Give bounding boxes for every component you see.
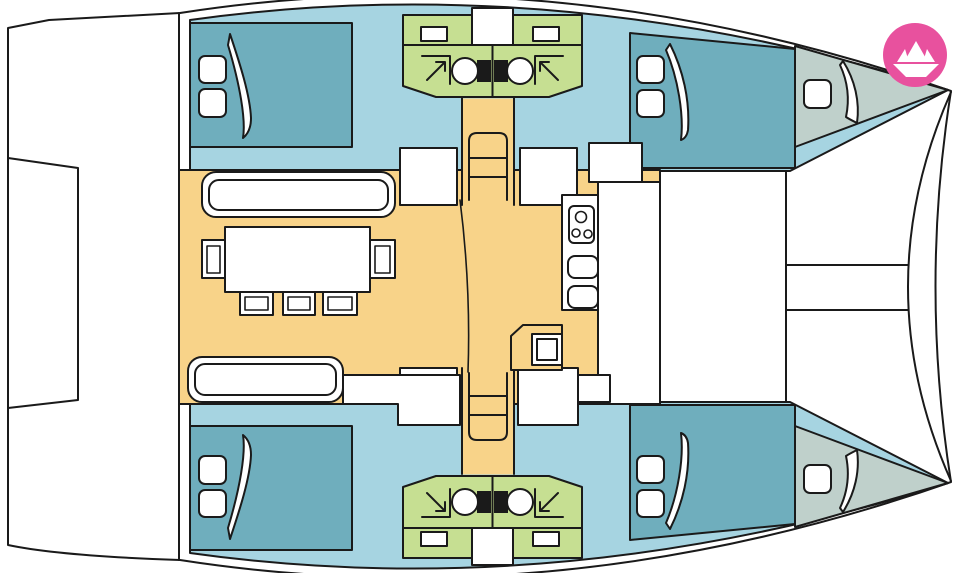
pillow xyxy=(637,90,664,117)
dining-table xyxy=(225,227,370,292)
counter-small xyxy=(578,375,610,402)
storage-locker xyxy=(589,143,642,182)
counter xyxy=(518,368,578,425)
counter xyxy=(400,148,457,205)
galley-sink xyxy=(568,256,598,278)
sink xyxy=(421,27,447,41)
toilet-tank xyxy=(494,60,508,82)
bathroom-entry xyxy=(472,8,513,45)
pillow xyxy=(637,56,664,83)
hull-bottom xyxy=(179,402,948,569)
galley-sink xyxy=(568,286,598,308)
toilet xyxy=(452,58,478,84)
forepeak-hatch xyxy=(804,80,831,108)
floor-plan-page xyxy=(0,0,967,573)
aft-cabin-bed xyxy=(190,23,352,147)
pillow xyxy=(199,89,226,117)
paper-boat-logo xyxy=(883,23,947,87)
toilet xyxy=(507,58,533,84)
sink xyxy=(533,27,559,41)
catamaran-floor-plan xyxy=(0,0,967,573)
toilet-tank xyxy=(477,60,491,82)
pillow xyxy=(199,56,226,83)
foredeck-zone xyxy=(598,182,660,404)
hull-top xyxy=(179,4,948,171)
